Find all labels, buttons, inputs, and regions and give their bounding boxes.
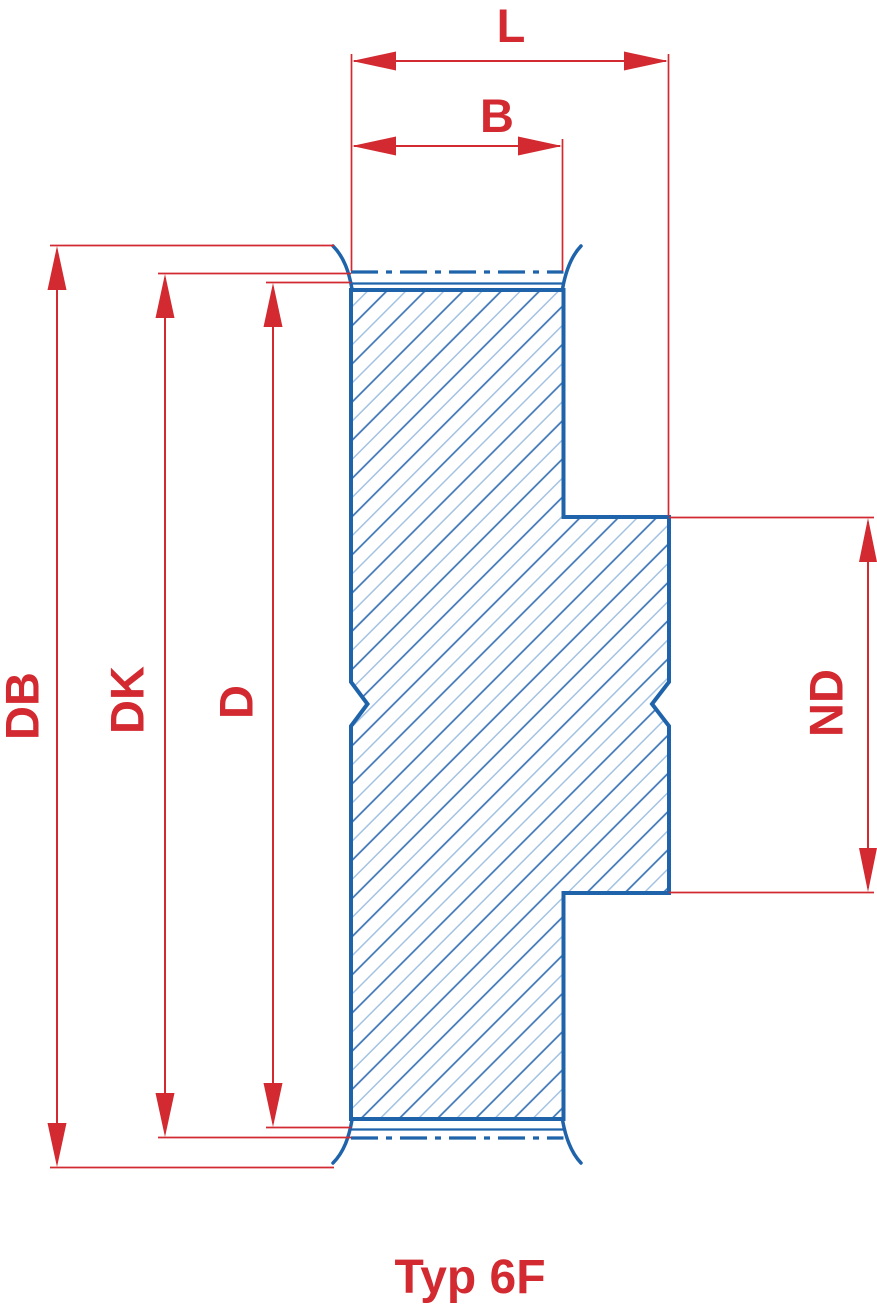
arrowhead-bottom bbox=[859, 848, 877, 892]
arrowhead-right bbox=[624, 52, 668, 71]
dimension-B: B bbox=[352, 89, 563, 271]
arrowhead-top bbox=[264, 283, 283, 327]
dimension-DB: DB bbox=[0, 246, 334, 1168]
dimension-label-D: D bbox=[209, 685, 262, 719]
flange-curve-bottom-left bbox=[333, 1120, 352, 1163]
arrowhead-top bbox=[859, 518, 877, 562]
dimension-label-DK: DK bbox=[100, 666, 153, 734]
arrowhead-bottom bbox=[48, 1123, 67, 1167]
arrowhead-right bbox=[518, 137, 562, 156]
dimension-label-L: L bbox=[497, 0, 526, 52]
flange-curve-top-right bbox=[563, 246, 582, 289]
dimension-label-ND: ND bbox=[799, 669, 852, 737]
pulley-section bbox=[333, 246, 669, 1163]
dimension-D: D bbox=[209, 283, 351, 1128]
dimension-label-B: B bbox=[480, 89, 514, 142]
dimension-label-DB: DB bbox=[0, 672, 48, 740]
pulley-body-section bbox=[351, 290, 669, 1119]
dimension-ND: ND bbox=[669, 518, 877, 893]
flange-curve-bottom-right bbox=[563, 1120, 582, 1163]
arrowhead-left bbox=[352, 52, 396, 71]
arrowhead-top bbox=[48, 246, 67, 290]
technical-drawing-page: L B DB DK bbox=[0, 0, 877, 1307]
pulley-cross-section-drawing: L B DB DK bbox=[0, 0, 877, 1307]
arrowhead-top bbox=[156, 274, 175, 318]
drawing-caption: Typ 6F bbox=[394, 1251, 545, 1304]
arrowhead-left bbox=[352, 137, 396, 156]
arrowhead-bottom bbox=[264, 1083, 283, 1127]
arrowhead-bottom bbox=[156, 1093, 175, 1137]
